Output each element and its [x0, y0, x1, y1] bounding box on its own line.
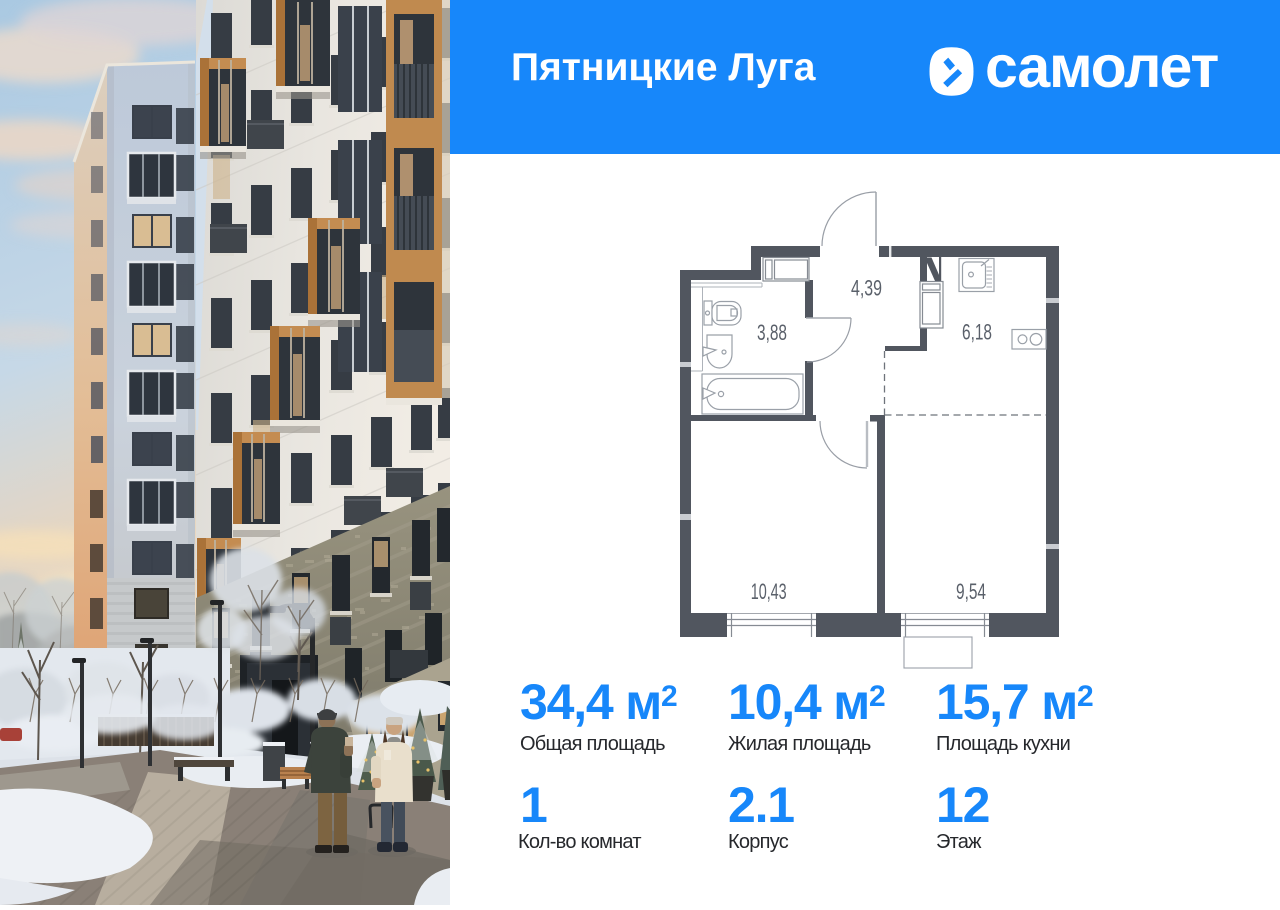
svg-text:10,43: 10,43 — [751, 579, 787, 604]
svg-text:4,39: 4,39 — [851, 276, 882, 301]
svg-text:6,18: 6,18 — [962, 320, 992, 345]
svg-text:самолет: самолет — [985, 47, 1218, 97]
svg-text:3,88: 3,88 — [757, 320, 787, 345]
svg-text:9,54: 9,54 — [956, 579, 986, 604]
